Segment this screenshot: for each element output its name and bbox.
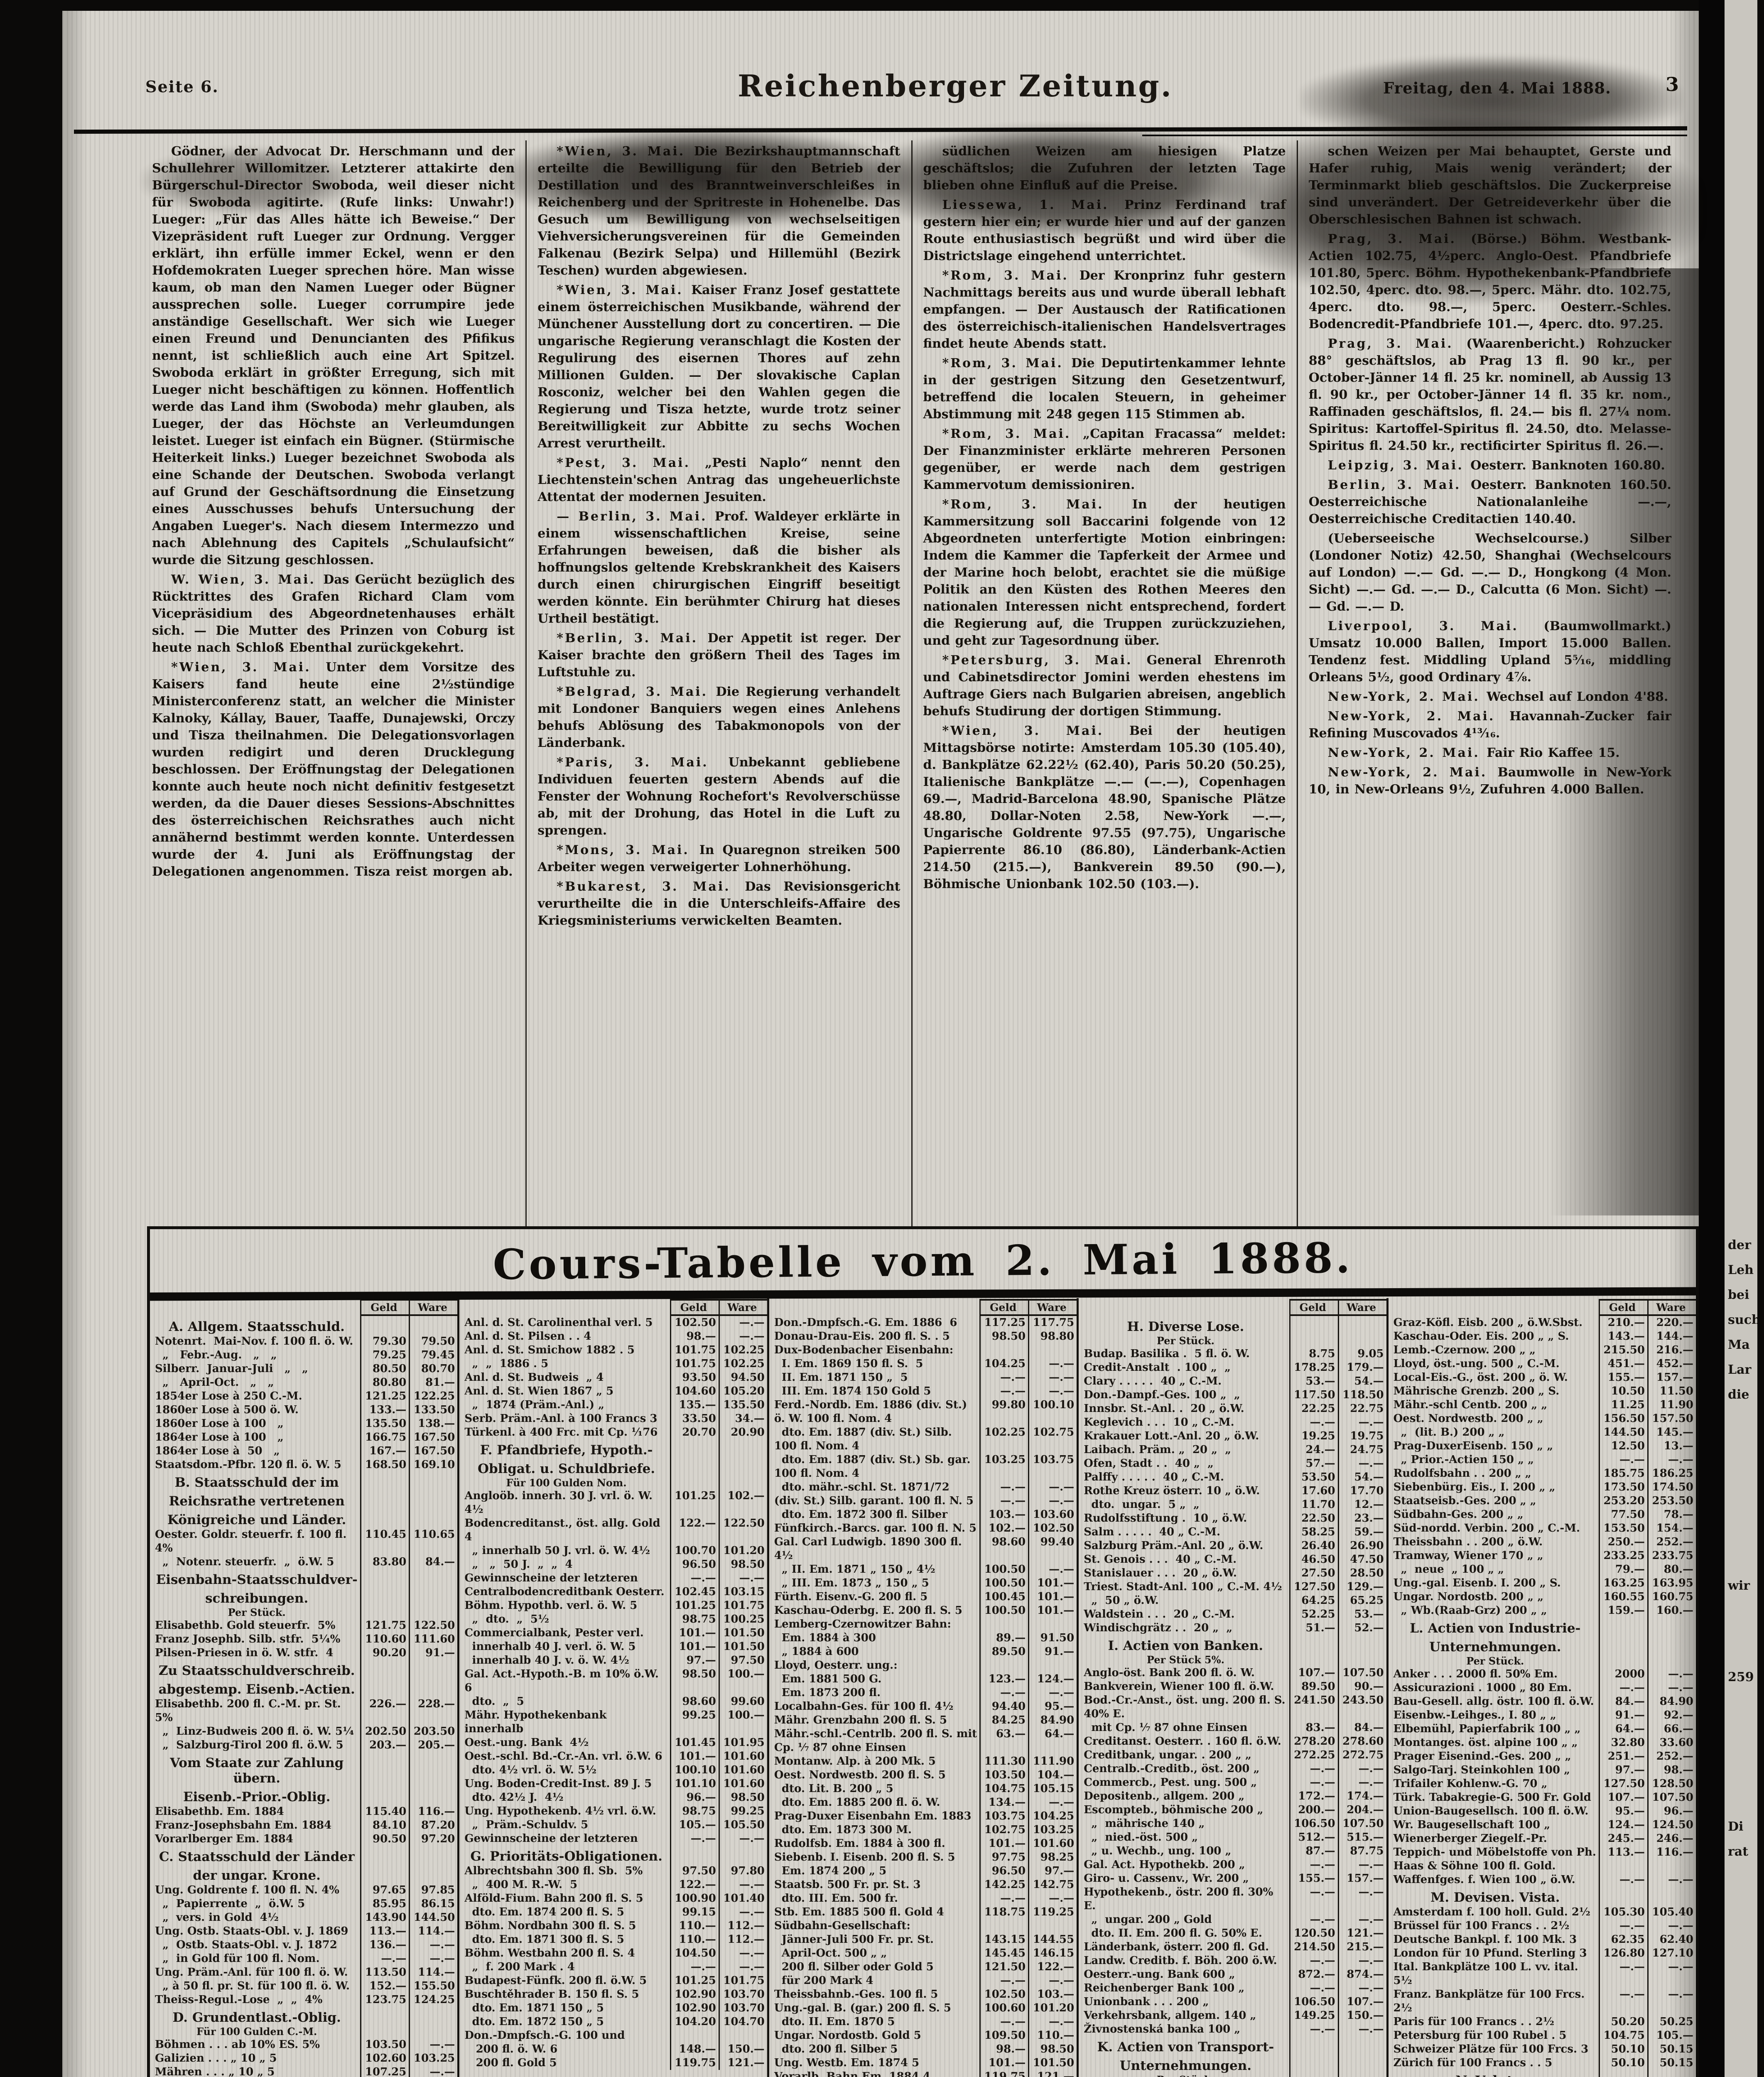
page-gutter	[1699, 0, 1725, 2077]
row-label: Franz. Bankplätze für 100 Frcs. 2½	[1389, 1988, 1599, 2015]
table-row: dto. Em. 1872 300 fl. Silber103.—103.60	[769, 1508, 1077, 1522]
row-label: „ Linz-Budweis 200 fl. ö. W. 5¼	[150, 1725, 360, 1738]
table-row: Anl. d. St. Carolinenthal verl. 5102.50—…	[459, 1316, 767, 1330]
header-rule	[74, 126, 1687, 134]
table-row: Mähr.-schl Centb. 200 „ „11.2511.90	[1389, 1398, 1696, 1412]
geld-value: 97.50	[670, 1864, 719, 1878]
row-label: April-Oct. 500 „ „	[769, 1947, 979, 1960]
adjacent-page-fragment: derLehbeisuchMaLardiewir259Dirat	[1725, 0, 1764, 2077]
geld-value: 134.—	[979, 1796, 1028, 1809]
row-label: Oest. Nordwestb. 200 fl. S. 5	[769, 1768, 979, 1782]
row-label: Ofen, Stadt . . 40 „ „	[1079, 1457, 1289, 1471]
row-label: Salgo-Tarj. Steinkohlen 100 „	[1389, 1763, 1599, 1777]
table-row: Innsbr. St.-Anl. . 20 „ ö.W.22.2522.75	[1079, 1402, 1386, 1416]
row-label: „ mährische 140 „	[1079, 1817, 1289, 1831]
ware-value: 99.60	[719, 1695, 767, 1709]
cours-group-3: GeldWareDon.-Dmpfsch.-G. Em. 1886 6117.2…	[767, 1298, 1077, 2077]
geld-value: 106.50	[1289, 1817, 1338, 1831]
section-subheading-row: Für 100 Gulden Nom.	[459, 1477, 767, 1489]
row-label: Em. 1884 à 300	[769, 1631, 979, 1645]
table-row: „ 400 M. R.-W. 5122.——.—	[459, 1878, 767, 1892]
row-label: Innsbr. St.-Anl. . 20 „ ö.W.	[1079, 1402, 1289, 1416]
row-label: Mähr.-schl.-Centrlb. 200 fl. S. mit Cp. …	[769, 1727, 979, 1755]
ware-value: 107.50	[1338, 1817, 1386, 1831]
geld-value: 11.25	[1599, 1398, 1647, 1412]
ware-value	[409, 1588, 457, 1606]
table-row: Deutsche Bankpl. f. 100 Mk. 362.3562.40	[1389, 1933, 1696, 1947]
paragraph-text: Bei der heutigen Mittagsbörse notirte: A…	[923, 724, 1286, 891]
dateline: *Wien, 3. Mai.	[171, 660, 326, 675]
geld-value: 163.25	[1599, 1576, 1647, 1590]
geld-value: 200.—	[1289, 1803, 1338, 1817]
geld-value: 62.35	[1599, 1933, 1647, 1947]
geld-value: —.—	[1289, 1954, 1338, 1968]
table-row: Buschtěhrader B. 150 fl. S. 5102.90103.7…	[459, 1988, 767, 2001]
paragraph-text: Kaiser Franz Josef gestattete einem öste…	[537, 283, 900, 451]
row-label: Verkehrsbank, allgem. 140 „	[1079, 2009, 1289, 2023]
table-row: Stb. Em. 1885 500 fl. Gold 4118.75119.25	[769, 1905, 1077, 1919]
section-subheading-row: Per Stück.	[150, 1606, 457, 1619]
table-row: 200 fl. ö. W. 6148.—150.—	[459, 2043, 767, 2056]
row-label: dto. 4½ vrl. ö. W. 5½	[459, 1763, 670, 1777]
row-label: „ neue „ 100 „ „	[1389, 1563, 1599, 1576]
table-row: „ Wb.(Raab-Grz) 200 „ „159.—160.—	[1389, 1604, 1696, 1618]
row-label: „ 1884 à 600	[769, 1645, 979, 1659]
row-label: Budapest-Fünfk. 200 fl. ö.W. 5	[459, 1974, 670, 1988]
table-row: Oest. Nordwestb. 200 „ „156.50157.50	[1389, 1412, 1696, 1426]
row-label: dto. Em. 1872 150 „ 5	[459, 2015, 670, 2029]
geld-value: 89.50	[979, 1645, 1028, 1659]
table-row: dto. 42½ J. 4½96.—98.50	[459, 1791, 767, 1804]
ware-value: 101.—	[1028, 1576, 1077, 1590]
paragraph-text: (Waarenbericht.) Rohzucker 88° geschäfts…	[1309, 336, 1671, 453]
ware-value	[1338, 1654, 1386, 1666]
table-row: „ „ 1886 . 5101.75102.25	[459, 1357, 767, 1371]
ware-value: 103.70	[719, 2001, 767, 2015]
ware-value: 121.—	[1028, 2070, 1077, 2077]
ware-value: 107.50	[1338, 1666, 1386, 1680]
row-label: Buschtěhrader B. 150 fl. S. 5	[459, 1988, 670, 2001]
geld-value: —.—	[979, 1686, 1028, 1700]
row-label: Em. 1873 200 fl.	[769, 1686, 979, 1700]
table-row: Oest.-ung. Bank 4½101.45101.95	[459, 1736, 767, 1750]
row-label: Giro- u. Cassenv., Wr. 200 „	[1079, 1872, 1289, 1886]
section-subheading-row: Per Stück.	[1389, 1655, 1696, 1667]
geld-value: 226.—	[360, 1697, 409, 1725]
geld-value: 50.10	[1599, 2056, 1647, 2070]
row-label: „ II. Em. 1871 „ 150 „ 4½	[769, 1563, 979, 1576]
ware-value: 101.75	[719, 1974, 767, 1988]
geld-value: 122.—	[670, 1878, 719, 1892]
table-row: Theissbahn . . 200 „ ö.W.250.—252.—	[1389, 1535, 1696, 1549]
ware-value: 101.50	[719, 1626, 767, 1640]
row-label: B. Staatsschuld der im	[150, 1472, 360, 1490]
row-label: Eisenb.-Prior.-Oblig.	[150, 1786, 360, 1805]
row-label: „ ungar. 200 „ Gold	[1079, 1913, 1289, 1927]
table-row: Amsterdam f. 100 holl. Guld. 2½105.30105…	[1389, 1905, 1696, 1919]
section-heading-row: Eisenb.-Prior.-Oblig.	[150, 1786, 457, 1805]
table-row: dto. Em. 1874 200 fl. S. 599.15—.—	[459, 1905, 767, 1919]
geld-value	[979, 1343, 1028, 1357]
edge-text-fragment: bei	[1728, 1288, 1749, 1302]
table-row: innerhalb 40 J. verl. ö. W. 5101.—101.50	[459, 1640, 767, 1654]
row-label: Keglevich . . . 10 „ C.-M.	[1079, 1416, 1289, 1429]
ware-value: 97.—	[1028, 1864, 1077, 1878]
row-label: Anker . . . 2000 fl. 50% Em.	[1389, 1667, 1599, 1681]
geld-value: 27.50	[1289, 1566, 1338, 1580]
article-column-4: schen Weizen per Mai behauptet, Gerste u…	[1297, 140, 1682, 1233]
table-row: „ f. 200 Mark . 4—.——.—	[459, 1960, 767, 1974]
row-label: „ Salzburg-Tirol 200 fl. ö.W. 5	[150, 1738, 360, 1752]
row-label: Kaschau-Oderbg. E. 200 fl. S. 5	[769, 1604, 979, 1618]
row-label: „ 1874 (Präm.-Anl.) „	[459, 1398, 670, 1412]
table-row: dto. „ 598.6099.60	[459, 1695, 767, 1709]
geld-value: 102.25	[979, 1426, 1028, 1453]
geld-value: 102.90	[670, 2001, 719, 2015]
table-row: Franz-Josephsbahn Em. 188484.1087.20	[150, 1819, 457, 1832]
dateline: New-York, 2. Mai.	[1328, 765, 1498, 780]
paragraph-text: Unter dem Vorsitze des Kaisers fand heut…	[152, 660, 515, 879]
geld-value: 19.25	[1289, 1429, 1338, 1443]
table-row: dto. Em. 1871 150 „ 5102.90103.70	[459, 2001, 767, 2015]
ware-value: 150.—	[719, 2043, 767, 2056]
ware-value: 100.—	[719, 1667, 767, 1695]
row-label: „ Ostb. Staats-Obl. v. J. 1872	[150, 1938, 360, 1952]
table-row: Bodencreditanst., öst. allg. Gold 4122.—…	[459, 1517, 767, 1544]
geld-value: —.—	[979, 2015, 1028, 2029]
geld-value: 168.50	[360, 1458, 409, 1472]
geld-value: 102.90	[670, 1988, 719, 2001]
geld-value: 98.50	[979, 1330, 1028, 1343]
ware-value: 186.25	[1647, 1467, 1696, 1480]
section-heading-row: N. Valuten.	[1389, 2070, 1696, 2077]
table-row: Krakauer Lott.-Anl. 20 „ ö.W.19.2519.75	[1079, 1429, 1386, 1443]
ware-value: 20.90	[719, 1426, 767, 1439]
ware-value	[409, 1509, 457, 1528]
dateline: W. Wien, 3. Mai.	[171, 572, 323, 587]
table-row: Waffenfges. f. Wien 100 „ ö.W.—.——.—	[1389, 1873, 1696, 1887]
table-row: „ Febr.-Aug. „ „79.2579.45	[150, 1348, 457, 1362]
article-paragraph: *Berlin, 3. Mai. Der Appetit ist reger. …	[537, 630, 900, 681]
geld-value: 101.—	[670, 1750, 719, 1763]
geld-value: 84.10	[360, 1819, 409, 1832]
article-paragraph: Liverpool, 3. Mai. (Baumwollmarkt.) Umsa…	[1309, 618, 1671, 686]
geld-value: 101.10	[670, 1777, 719, 1791]
ware-value: 47.50	[1338, 1553, 1386, 1566]
geld-value: 79.—	[1599, 1563, 1647, 1576]
table-row: Elbemühl, Papierfabrik 100 „ „64.—66.—	[1389, 1722, 1696, 1736]
ware-value: 135.50	[719, 1398, 767, 1412]
table-row: Oester. Goldr. steuerfr. f. 100 fl. 4%11…	[150, 1528, 457, 1555]
article-paragraph: südlichen Weizen am hiesigen Platze gesc…	[923, 143, 1286, 194]
ware-value	[719, 2029, 767, 2043]
ware-value: —.—	[1338, 1913, 1386, 1927]
table-row: Gal. Act.-Hypoth.-B. m 10% ö.W. 698.5010…	[459, 1667, 767, 1695]
table-row: Eisenbw.-Leihges., I. 80 „ „91.—92.—	[1389, 1709, 1696, 1722]
geld-value: 251.—	[1599, 1750, 1647, 1763]
ware-value: —.—	[1028, 1796, 1077, 1809]
row-label: Elbemühl, Papierfabrik 100 „ „	[1389, 1722, 1599, 1736]
ware-value	[409, 1472, 457, 1490]
row-label: Anl. d. St. Wien 1867 „ 5	[459, 1385, 670, 1398]
ware-value: —.—	[1028, 1357, 1077, 1371]
ware-value: 119.25	[1028, 1905, 1077, 1919]
row-label: Gal. Carl Ludwigb. 1890 300 fl. 4½	[769, 1535, 979, 1563]
table-row: Montanw. Alp. à 200 Mk. 5111.30111.90	[769, 1755, 1077, 1768]
row-label: Türk. Tabakregie-G. 500 Fr. Gold	[1389, 1791, 1599, 1804]
ware-value: —.—	[409, 1938, 457, 1952]
ware-value: 91.50	[1028, 1631, 1077, 1645]
geld-value	[360, 1865, 409, 1883]
table-row: „ 1874 (Präm.-Anl.) „135.—135.50	[459, 1398, 767, 1412]
row-label: Elisabethb. Gold steuerfr. 5%	[150, 1619, 360, 1633]
geld-value: 101.25	[670, 1489, 719, 1517]
row-label: dto. Em. 1871 150 „ 5	[459, 2001, 670, 2015]
ware-value: 160.—	[1647, 1604, 1696, 1618]
table-row: „ à 50 fl. pr. St. für 100 fl. ö. W.152.…	[150, 1979, 457, 1993]
row-label: Stb. Em. 1885 500 fl. Gold 4	[769, 1905, 979, 1919]
ware-value: 84.90	[1647, 1695, 1696, 1709]
dateline: *Rom, 3. Mai.	[942, 268, 1079, 283]
row-label: dto. III. Em. 500 fr.	[769, 1892, 979, 1905]
article-paragraph: Berlin, 3. Mai. Oesterr. Banknoten 160.5…	[1309, 476, 1671, 528]
row-label: Commercialbank, Pester verl.	[459, 1626, 670, 1640]
row-label: Mähr. Hypothekenbank innerhalb	[459, 1709, 670, 1736]
ware-value: 246.—	[1647, 1832, 1696, 1846]
geld-value: 253.20	[1599, 1494, 1647, 1508]
row-label: N. Valuten.	[1389, 2070, 1599, 2077]
geld-value: —.—	[1599, 1960, 1647, 1988]
ware-value: 98.50	[1028, 2043, 1077, 2056]
row-label: Mähr.-schl Centb. 200 „ „	[1389, 1398, 1599, 1412]
article-paragraph: *Wien, 3. Mai. Kaiser Franz Josef gestat…	[537, 282, 900, 452]
ware-value	[719, 1477, 767, 1489]
row-label: Oester. Goldr. steuerfr. f. 100 fl. 4%	[150, 1528, 360, 1555]
ware-value	[409, 2007, 457, 2025]
row-label: dto. Lit. B. 200 „ 5	[769, 1782, 979, 1796]
ware-value: 100.—	[719, 1709, 767, 1736]
ware-value: 105.20	[719, 1385, 767, 1398]
geld-value: —.—	[979, 1480, 1028, 1494]
adjacent-page-number: 3	[1666, 73, 1679, 96]
row-label: Montanw. Alp. à 200 Mk. 5	[769, 1755, 979, 1768]
paragraph-text: schen Weizen per Mai behauptet, Gerste u…	[1309, 144, 1671, 227]
table-row: dto. II. Em. 200 fl. G. 50% E.120.50121.…	[1079, 1927, 1386, 1940]
table-row: „ mährische 140 „106.50107.50	[1079, 1817, 1386, 1831]
table-row: Triest. Stadt-Anl. 100 „ C.-M. 4½127.501…	[1079, 1580, 1386, 1594]
row-label: abgestemp. Eisenb.-Actien.	[150, 1679, 360, 1697]
ware-value	[409, 1490, 457, 1509]
geld-ware-header: GeldWare	[1389, 1299, 1696, 1316]
geld-value: 96.50	[670, 1558, 719, 1571]
table-row: 1860er Lose à 500 ö. W.133.—133.50	[150, 1403, 457, 1417]
table-row: Creditbank, ungar. . 200 „ „272.25272.75	[1079, 1748, 1386, 1762]
row-label: Paris für 100 Francs . . 2½	[1389, 2015, 1599, 2029]
geld-value: 103.50	[979, 1768, 1028, 1782]
table-row: Zürich für 100 Francs . . 550.1050.15	[1389, 2056, 1696, 2070]
geld-value: —.—	[670, 1832, 719, 1846]
section-heading-row: K. Actien von Transport-	[1079, 2036, 1386, 2055]
table-row: 1854er Lose à 250 C.-M.121.25122.25	[150, 1390, 457, 1403]
row-label: Krakauer Lott.-Anl. 20 „ ö.W.	[1079, 1429, 1289, 1443]
geld-value: —.—	[1599, 1873, 1647, 1887]
article-column-3: südlichen Weizen am hiesigen Platze gesc…	[911, 140, 1297, 1233]
table-row: Pilsen-Priesen in ö. W. stfr. 490.2091.—	[150, 1646, 457, 1660]
geld-value: 103.—	[979, 1508, 1028, 1522]
ware-value: 54.—	[1338, 1375, 1386, 1388]
geld-value: —.—	[360, 1952, 409, 1966]
geld-value: 103.25	[979, 1453, 1028, 1480]
row-label: Prager Eisenind.-Ges. 200 „ „	[1389, 1750, 1599, 1763]
row-label: Don.-Dampf.-Ges. 100 „ „	[1079, 1388, 1289, 1402]
geld-value: 101.25	[670, 1974, 719, 1988]
ware-value: 179.—	[1338, 1361, 1386, 1375]
row-label: Petersburg für 100 Rubel . 5	[1389, 2029, 1599, 2043]
row-label: Teppich- und Möbelstoffe von Ph. Haas & …	[1389, 1846, 1599, 1873]
ware-value: —.—	[719, 1571, 767, 1585]
ware-value: 90.—	[1338, 1680, 1386, 1694]
table-row: „ innerhalb 50 J. vrl. ö. W. 4½100.70101…	[459, 1544, 767, 1558]
row-label: „ dto. „ 5½	[459, 1613, 670, 1626]
geld-value: 107.25	[360, 2065, 409, 2077]
ware-value: 102.25	[719, 1343, 767, 1357]
row-label: Trifailer Kohlenw.-G. 70 „	[1389, 1777, 1599, 1791]
geld-value: 97.65	[360, 1883, 409, 1897]
table-row: Em. 1874 200 „ 596.5097.—	[769, 1864, 1077, 1878]
cours-group-5: GeldWareGraz-Köfl. Eisb. 200 „ ö.W.Sbst.…	[1386, 1298, 1696, 2077]
row-label: innerhalb 40 J. v. ö. W. 4½	[459, 1654, 670, 1667]
geld-value: 512.—	[1289, 1831, 1338, 1844]
table-row: Mähr. Hypothekenbank innerhalb99.25100.—	[459, 1709, 767, 1736]
row-label: Vorarlberger Em. 1884	[150, 1832, 360, 1846]
ware-value: —.—	[719, 1878, 767, 1892]
row-label: „ April-Oct. „ „	[150, 1376, 360, 1390]
geld-value: 156.50	[1599, 1412, 1647, 1426]
row-label: Franz-Josephsbahn Em. 1884	[150, 1819, 360, 1832]
ware-value	[719, 1439, 767, 1458]
geld-col-header: Geld	[1599, 1299, 1647, 1316]
table-row: Stanislauer . . . 20 „ ö.W.27.5028.50	[1079, 1566, 1386, 1580]
ware-value: 84.—	[409, 1555, 457, 1569]
geld-value: —.—	[1289, 1416, 1338, 1429]
ware-value: 24.75	[1338, 1443, 1386, 1457]
row-label	[1389, 1299, 1599, 1316]
table-row: Staatsb. 500 Fr. pr. St. 3142.25142.75	[769, 1878, 1077, 1892]
cours-groups: GeldWareA. Allgem. Staatsschuld.Notenrt.…	[150, 1298, 1696, 2077]
geld-value: 100.50	[979, 1563, 1028, 1576]
table-row: Giro- u. Cassenv., Wr. 200 „155.—157.—	[1079, 1872, 1386, 1886]
geld-value: 80.50	[360, 1362, 409, 1376]
dateline: Prag, 3. Mai.	[1328, 336, 1467, 351]
ware-value: 98.25	[1028, 1851, 1077, 1864]
dateline: *Bukarest, 3. Mai.	[557, 879, 745, 894]
geld-value: 127.50	[1599, 1777, 1647, 1791]
cours-tabelle-title: Cours-Tabelle vom 2. Mai 1888.	[150, 1223, 1696, 1294]
geld-value: 117.50	[1289, 1388, 1338, 1402]
table-row: Ung. Boden-Credit-Inst. 89 J. 5101.10101…	[459, 1777, 767, 1791]
geld-value	[360, 1679, 409, 1697]
geld-value	[1599, 1618, 1647, 1636]
ware-value: —.—	[1028, 2015, 1077, 2029]
row-label: K. Actien von Transport-	[1079, 2036, 1289, 2055]
row-label: Fünfkirch.-Barcs. gar. 100 fl. N. 5	[769, 1522, 979, 1535]
table-row: Budapest-Fünfk. 200 fl. ö.W. 5101.25101.…	[459, 1974, 767, 1988]
ware-value: —.—	[1028, 1371, 1077, 1385]
geld-value: 104.60	[670, 1385, 719, 1398]
table-row: Anl. d. St. Smichow 1882 . 5101.75102.25	[459, 1343, 767, 1357]
ware-value: 104.—	[1028, 1768, 1077, 1782]
ware-value: 203.50	[409, 1725, 457, 1738]
row-label: Hypothekenb., östr. 200 fl. 30% E.	[1079, 1886, 1289, 1913]
geld-value: 102.60	[360, 2052, 409, 2065]
geld-value	[1289, 1635, 1338, 1654]
ware-value: 79.45	[409, 1348, 457, 1362]
table-row: (div. St.) Silb. garant. 100 fl. N. 5—.—…	[769, 1494, 1077, 1508]
ware-value: 102.25	[719, 1357, 767, 1371]
geld-value: 210.—	[1599, 1316, 1647, 1330]
geld-value: 100.90	[670, 1892, 719, 1905]
row-label: F. Pfandbriefe, Hypoth.-	[459, 1439, 670, 1458]
table-row: „ u. Wechb., ung. 100 „87.—87.75	[1079, 1844, 1386, 1858]
paragraph-text: In der heutigen Kammersitzung soll Bacca…	[923, 497, 1286, 648]
geld-value	[1289, 1316, 1338, 1335]
row-label: „ in Gold für 100 fl. Nom.	[150, 1952, 360, 1966]
row-label: Rothe Kreuz österr. 10 „ ö.W.	[1079, 1484, 1289, 1498]
table-row: Silberr. Januar-Juli „ „80.5080.70	[150, 1362, 457, 1376]
ware-value: 167.50	[409, 1431, 457, 1444]
row-label: Gal. Act. Hypothekb. 200 „	[1079, 1858, 1289, 1872]
ware-value: 174.—	[1338, 1790, 1386, 1803]
row-label: Theiss-Regul.-Lose „ „ 4%	[150, 1993, 360, 2007]
section-heading-row: Eisenbahn-Staatsschuldver-	[150, 1569, 457, 1588]
geld-value: 98.50	[670, 1667, 719, 1695]
row-label: Assicurazioni . 1000 „ 80 Em.	[1389, 1681, 1599, 1695]
geld-value: —.—	[670, 1571, 719, 1585]
row-label: Lemberg-Czernowitzer Bahn:	[769, 1618, 979, 1631]
table-row: Bankverein, Wiener 100 fl. ö.W.89.5090.—	[1079, 1680, 1386, 1694]
table-row: London für 10 Pfund. Sterling 3126.80127…	[1389, 1947, 1696, 1960]
geld-value: 105.—	[670, 1818, 719, 1832]
row-label: Reichsrathe vertretenen	[150, 1490, 360, 1509]
row-label: Zürich für 100 Francs . . 5	[1389, 2056, 1599, 2070]
ware-value	[409, 1679, 457, 1697]
geld-value: —.—	[1289, 1886, 1338, 1913]
dateline: Berlin, 3. Mai.	[1328, 478, 1471, 492]
ware-col-header: Ware	[719, 1299, 767, 1316]
article-paragraph: *Wien, 3. Mai. Bei der heutigen Mittagsb…	[923, 722, 1286, 893]
row-label: Staatsb. 500 Fr. pr. St. 3	[769, 1878, 979, 1892]
table-row: dto. Em. 1873 300 M.102.75103.25	[769, 1823, 1077, 1837]
article-paragraph: *Wien, 3. Mai. Die Bezirkshauptmannschaf…	[537, 143, 900, 279]
geld-value: 215.50	[1599, 1343, 1647, 1357]
table-row: Kaschau-Oder. Eis. 200 „ „ S.143.—144.—	[1389, 1330, 1696, 1343]
article-paragraph: *Rom, 3. Mai. In der heutigen Kammersitz…	[923, 496, 1286, 649]
geld-value: 121.25	[360, 1390, 409, 1403]
table-row: Staatsdom.-Pfbr. 120 fl. ö. W. 5168.5016…	[150, 1458, 457, 1472]
table-row: Graz-Köfl. Eisb. 200 „ ö.W.Sbst.210.—220…	[1389, 1316, 1696, 1330]
ware-value: 52.—	[1338, 1621, 1386, 1635]
row-label: Ferd.-Nordb. Em. 1886 (div. St.) ö. W. 1…	[769, 1398, 979, 1426]
ware-value	[1338, 2036, 1386, 2055]
table-row: Em. 1881 500 G.123.—124.—	[769, 1672, 1077, 1686]
row-label: Stanislauer . . . 20 „ ö.W.	[1079, 1566, 1289, 1580]
row-label: Ung.-gal. B. (gar.) 200 fl. S. 5	[769, 2001, 979, 2015]
geld-value: 20.70	[670, 1426, 719, 1439]
ware-value: —.—	[1338, 1762, 1386, 1776]
ware-value: 81.—	[409, 1376, 457, 1390]
row-label: Donau-Drau-Eis. 200 fl. S. . 5	[769, 1330, 979, 1343]
row-label: H. Diverse Lose.	[1079, 1316, 1289, 1335]
